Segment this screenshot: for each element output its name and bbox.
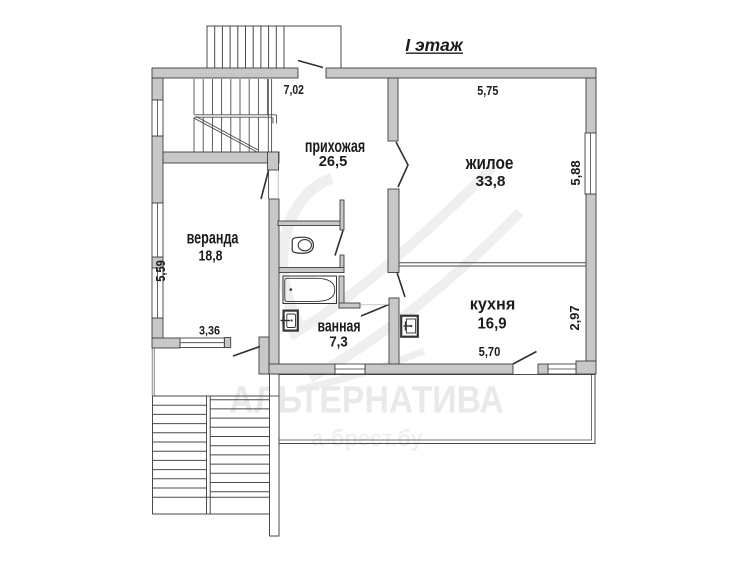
svg-text:26,5: 26,5 [319, 154, 348, 170]
svg-text:жилое: жилое [465, 153, 514, 174]
svg-text:5,59: 5,59 [153, 260, 168, 282]
svg-text:а-брест.бу: а-брест.бу [311, 426, 423, 452]
svg-text:кухня: кухня [470, 296, 516, 314]
svg-text:5,88: 5,88 [568, 160, 583, 185]
svg-text:веранда: веранда [187, 229, 239, 249]
svg-text:5,70: 5,70 [479, 344, 501, 359]
svg-text:5,75: 5,75 [477, 84, 499, 98]
svg-text:7,3: 7,3 [329, 333, 347, 350]
svg-text:2,97: 2,97 [567, 305, 582, 330]
svg-text:3,36: 3,36 [199, 325, 220, 338]
svg-text:18,8: 18,8 [199, 247, 223, 263]
svg-text:16,9: 16,9 [477, 315, 506, 332]
svg-text:33,8: 33,8 [475, 173, 505, 190]
svg-text:7,02: 7,02 [284, 83, 305, 97]
svg-text:I этаж: I этаж [405, 35, 463, 55]
